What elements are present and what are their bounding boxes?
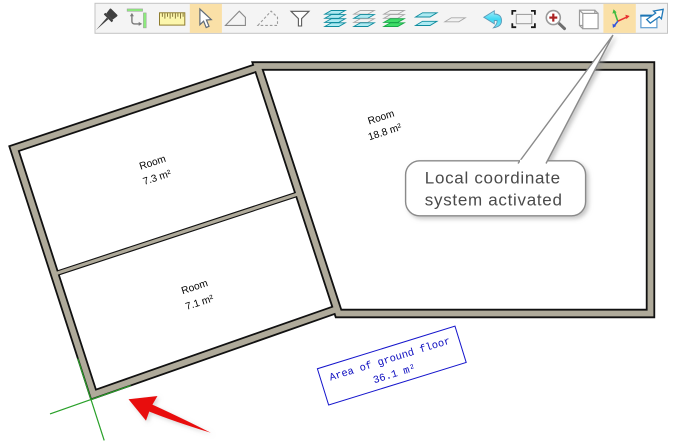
svg-text:Local coordinate: Local coordinate	[425, 168, 561, 187]
svg-text:system activated: system activated	[425, 190, 563, 209]
